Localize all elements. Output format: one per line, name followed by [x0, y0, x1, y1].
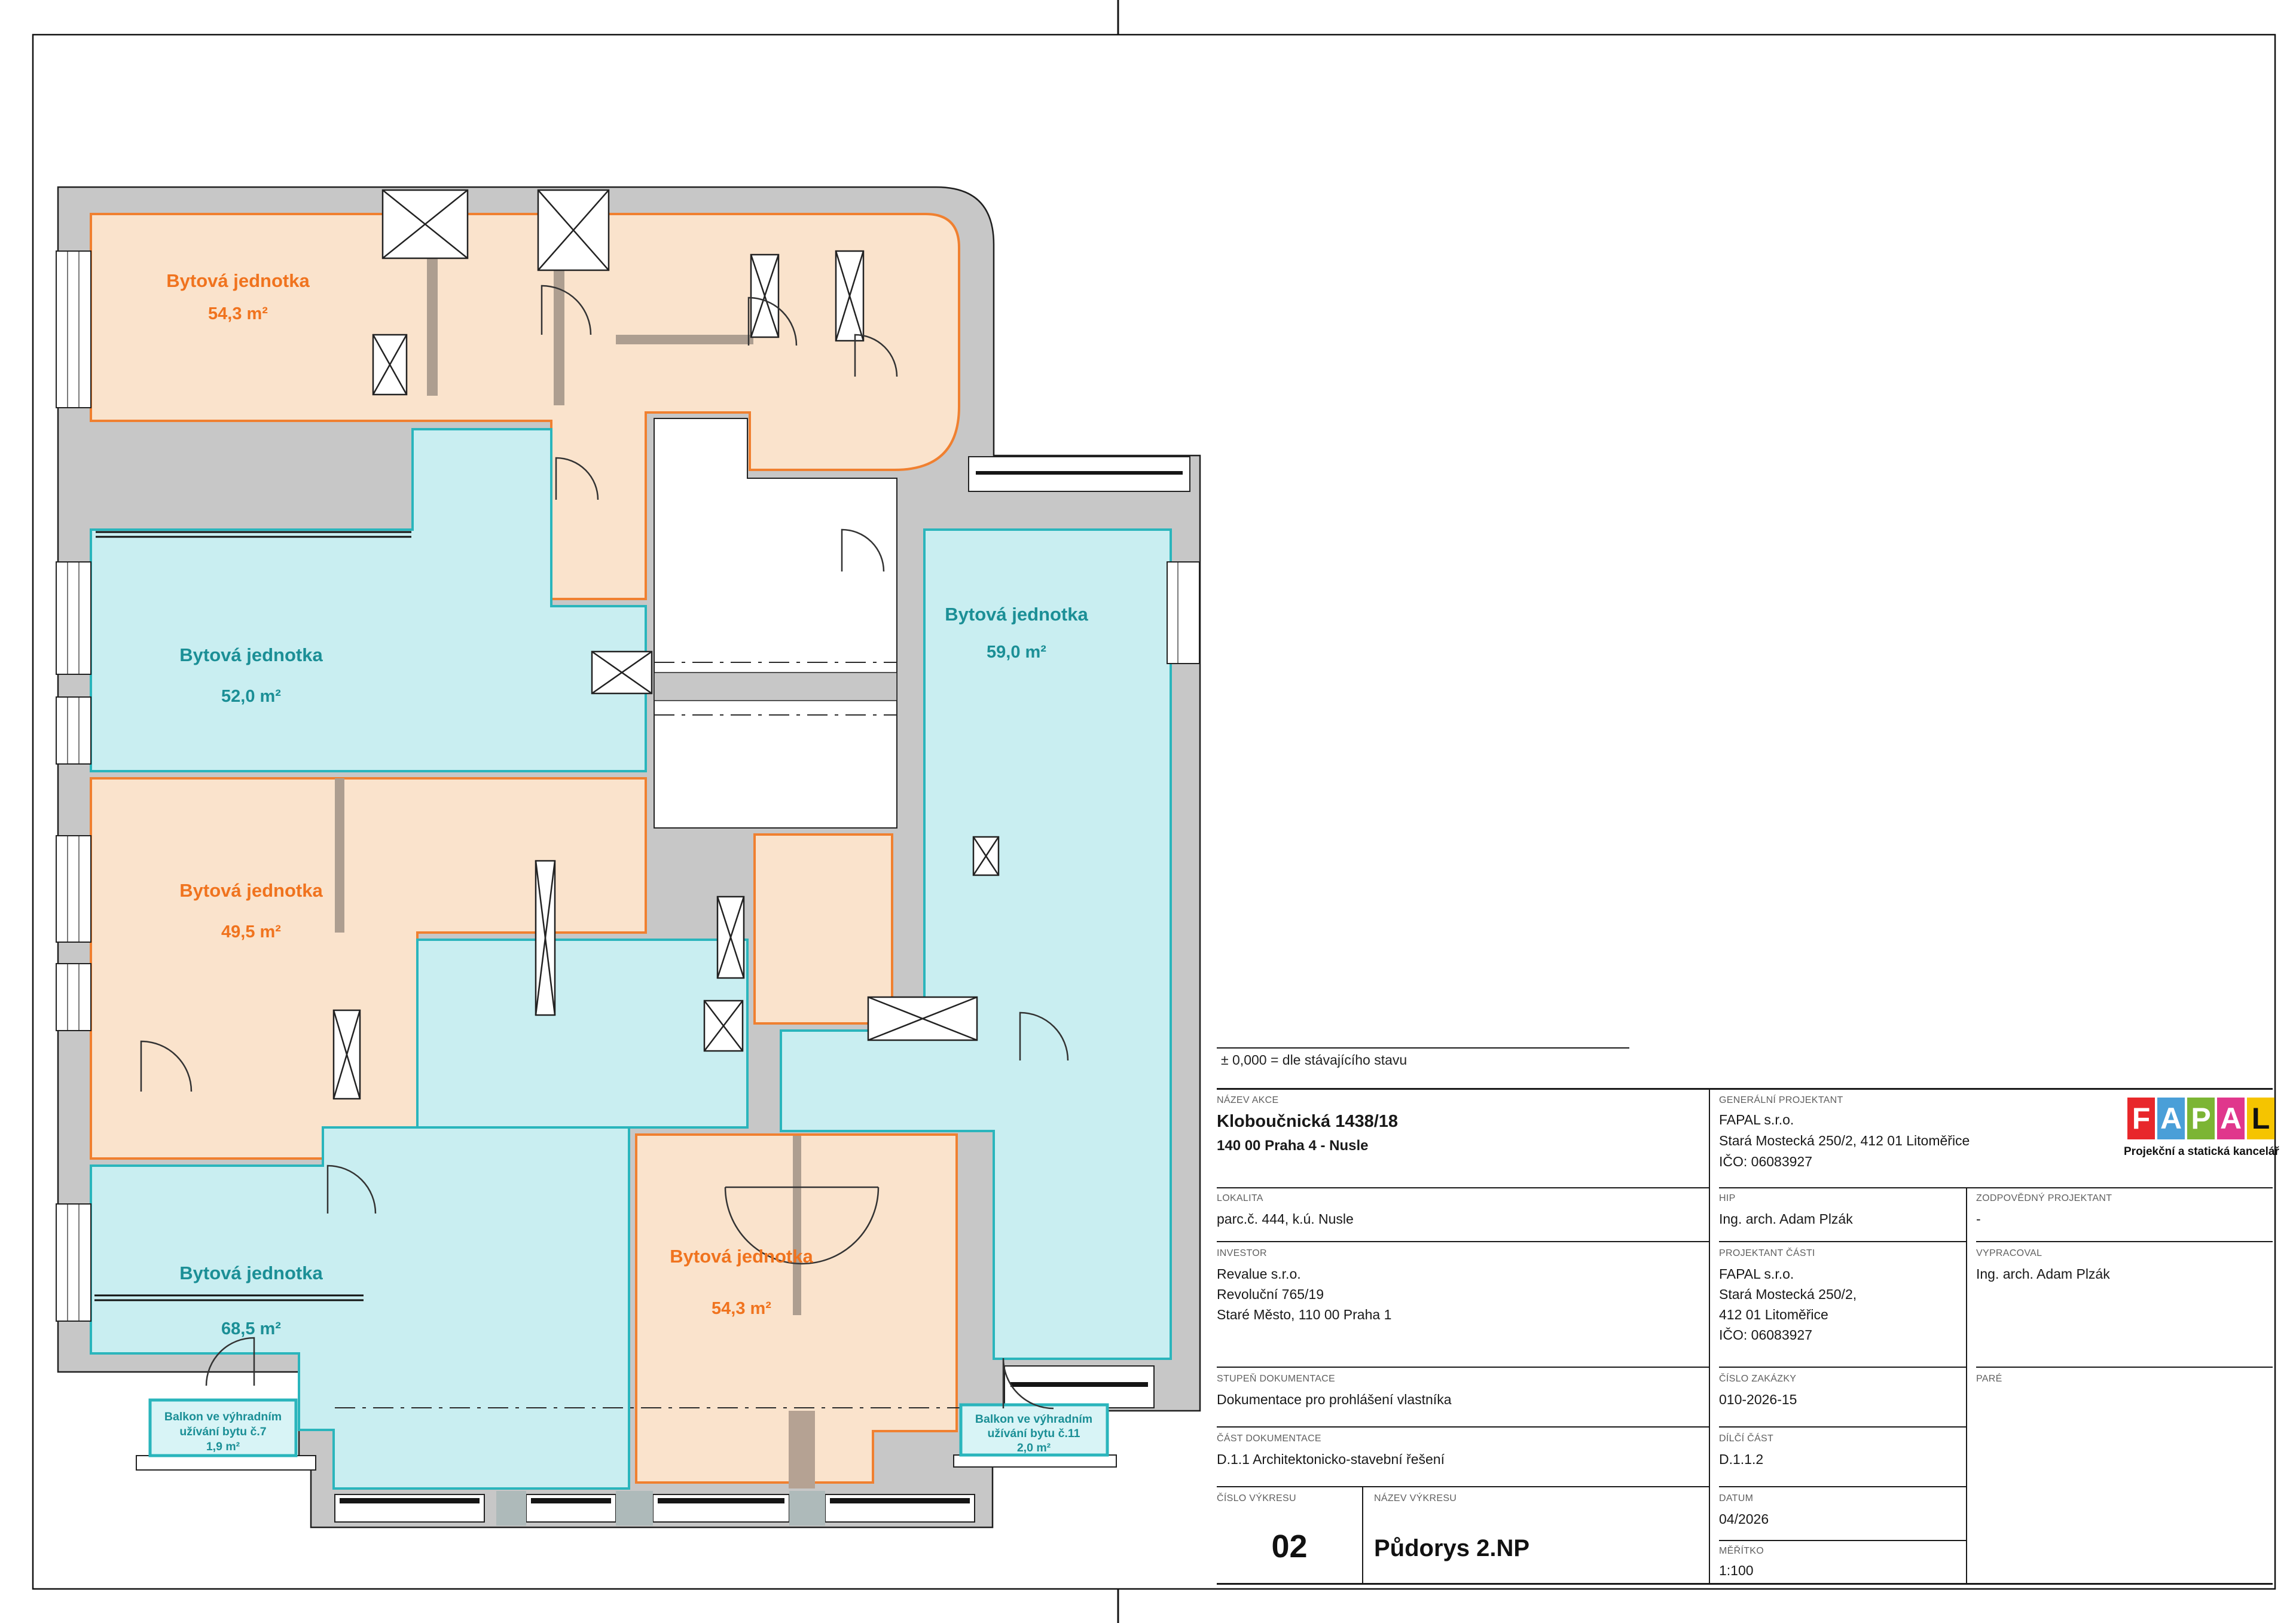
rule [1719, 1486, 1966, 1487]
balcony-11-platform [954, 1455, 1116, 1467]
projektant-casti-line1: FAPAL s.r.o. [1719, 1266, 1794, 1282]
datum-value: 04/2026 [1719, 1511, 1769, 1527]
facade-pier [616, 1491, 653, 1526]
gen-line3: IČO: 06083927 [1719, 1154, 1812, 1170]
loggia-rail [976, 471, 1183, 475]
datum-label: DATUM [1719, 1493, 1753, 1504]
rule [1719, 1367, 1966, 1368]
partition-wall [616, 335, 753, 344]
gen-line1: FAPAL s.r.o. [1719, 1112, 1794, 1128]
unit-54a-label: Bytová jednotka [166, 270, 310, 291]
pare-label: PARÉ [1976, 1374, 2002, 1384]
vypracoval-value: Ing. arch. Adam Plzák [1976, 1266, 2110, 1282]
logo-letter-a2: A [2217, 1098, 2245, 1139]
meritko-label: MĚŘÍTKO [1719, 1546, 1764, 1557]
partition-wall [335, 778, 344, 933]
unit-59-label: Bytová jednotka [945, 604, 1088, 625]
investor-line2: Revoluční 765/19 [1217, 1286, 1324, 1303]
bottom-windows [335, 1491, 975, 1526]
partition-pier [789, 1411, 815, 1488]
rule [1217, 1486, 1709, 1487]
investor-line1: Revalue s.r.o. [1217, 1266, 1301, 1282]
hip-label: HIP [1719, 1193, 1736, 1204]
rule [1976, 1367, 2273, 1368]
window [56, 1204, 91, 1321]
logo-letter-a1: A [2157, 1098, 2185, 1139]
projektant-casti-line3: 412 01 Litoměřice [1719, 1307, 1828, 1323]
balcony-11-line2: užívání bytu č.11 [988, 1427, 1080, 1440]
zodpovedny-label: ZODPOVĚDNÝ PROJEKTANT [1976, 1193, 2112, 1204]
unit-49-area: 49,5 m² [221, 922, 281, 942]
elevation-note: ± 0,000 = dle stávajícího stavu [1221, 1052, 1407, 1068]
investor-line3: Staré Město, 110 00 Praha 1 [1217, 1307, 1391, 1323]
logo-caption: Projekční a statická kancelář [2124, 1145, 2279, 1159]
window [56, 251, 91, 408]
logo-letter-p: P [2187, 1098, 2215, 1139]
balcony-11-line1: Balkon ve výhradním [975, 1413, 1092, 1426]
projektant-casti-label: PROJEKTANT ČÁSTI [1719, 1248, 1815, 1259]
unit-54a-area: 54,3 m² [208, 304, 268, 323]
rule [1217, 1047, 1629, 1049]
hip-value: Ing. arch. Adam Plzák [1719, 1211, 1853, 1227]
cislo-zakazky-value: 010-2026-15 [1719, 1392, 1797, 1408]
stair-landing [654, 673, 897, 701]
rule [1719, 1187, 2273, 1188]
balcony-7-line2: užívání bytu č.7 [179, 1425, 266, 1438]
titleblock-bottom-rule [1217, 1583, 2273, 1585]
dilci-cast-label: DÍLČÍ ČÁST [1719, 1434, 1773, 1444]
unit-68-teal-hall [417, 940, 747, 1127]
unit-68-area: 68,5 m² [221, 1319, 281, 1338]
zodpovedny-value: - [1976, 1211, 1981, 1227]
facade-pier [789, 1491, 825, 1526]
stupen-value: Dokumentace pro prohlášení vlastníka [1217, 1392, 1452, 1408]
courtyard [654, 418, 897, 828]
nazev-akce-line2: 140 00 Praha 4 - Nusle [1217, 1138, 1368, 1154]
unit-54b-label: Bytová jednotka [670, 1246, 813, 1267]
cislo-zakazky-label: ČÍSLO ZAKÁZKY [1719, 1374, 1796, 1384]
nazev-vykresu-label: NÁZEV VÝKRESU [1374, 1493, 1457, 1504]
logo-letter-f: F [2127, 1098, 2155, 1139]
dilci-cast-value: D.1.1.2 [1719, 1451, 1763, 1468]
lokalita-label: LOKALITA [1217, 1193, 1263, 1204]
window-rail [830, 1498, 970, 1503]
divider [1709, 1089, 1710, 1583]
rule [1217, 1187, 1709, 1188]
lokalita-value: parc.č. 444, k.ú. Nusle [1217, 1211, 1354, 1227]
divider [1966, 1187, 1967, 1583]
stupen-label: STUPEŇ DOKUMENTACE [1217, 1374, 1335, 1384]
nazev-akce-label: NÁZEV AKCE [1217, 1095, 1278, 1106]
unit-59-area: 59,0 m² [987, 643, 1046, 662]
rule [1217, 1241, 1709, 1242]
projektant-casti-line4: IČO: 06083927 [1719, 1327, 1812, 1343]
logo-letter-l: L [2247, 1098, 2274, 1139]
window-rail [658, 1498, 784, 1503]
balcony-11-line3: 2,0 m² [1017, 1441, 1051, 1454]
meritko-value: 1:100 [1719, 1563, 1754, 1579]
investor-label: INVESTOR [1217, 1248, 1267, 1259]
cast-value: D.1.1 Architektonicko-stavební řešení [1217, 1451, 1445, 1468]
unit-54b-orange-bath [755, 835, 892, 1023]
partition-wall [793, 1136, 801, 1315]
unit-52-label: Bytová jednotka [179, 644, 323, 665]
balcony-7-platform [136, 1456, 316, 1470]
balcony-7-line3: 1,9 m² [206, 1440, 240, 1453]
titleblock-top-rule [1217, 1088, 2273, 1090]
window-rail [531, 1498, 611, 1503]
rule [1719, 1426, 1966, 1428]
unit-52-area: 52,0 m² [221, 687, 281, 706]
rule [1217, 1367, 1709, 1368]
unit-68-label: Bytová jednotka [179, 1263, 323, 1283]
window-rail [1010, 1382, 1148, 1387]
sheet: { "sheet": { "elevation_note": "± 0,000 … [0, 0, 2296, 1623]
nazev-akce-line1: Kloboučnická 1438/18 [1217, 1112, 1398, 1132]
divider [1362, 1486, 1363, 1583]
vypracoval-label: VYPRACOVAL [1976, 1248, 2042, 1259]
window [56, 562, 91, 674]
facade-pier [496, 1491, 526, 1526]
window-rail [340, 1498, 480, 1503]
cast-label: ČÁST DOKUMENTACE [1217, 1434, 1321, 1444]
gen-projektant-label: GENERÁLNÍ PROJEKTANT [1719, 1095, 1843, 1106]
unit-54b-area: 54,3 m² [712, 1299, 771, 1318]
rule [1719, 1241, 1966, 1242]
window [56, 697, 91, 764]
gen-line2: Stará Mostecká 250/2, 412 01 Litoměřice [1719, 1133, 1970, 1149]
balcony-7-line1: Balkon ve výhradním [164, 1410, 282, 1423]
rule [1976, 1241, 2273, 1242]
cislo-vykresu-label: ČÍSLO VÝKRESU [1217, 1493, 1296, 1504]
rule [1217, 1426, 1709, 1428]
fapal-logo: F A P A L [2127, 1098, 2274, 1139]
cislo-vykresu-value: 02 [1217, 1528, 1362, 1565]
nazev-vykresu-value: Půdorys 2.NP [1374, 1535, 1529, 1562]
unit-49-label: Bytová jednotka [179, 880, 323, 901]
window [56, 964, 91, 1031]
projektant-casti-line2: Stará Mostecká 250/2, [1719, 1286, 1857, 1303]
window [56, 836, 91, 942]
window [1167, 562, 1199, 664]
rule [1719, 1540, 1966, 1541]
floor-plan-drawing: Bytová jednotka 54,3 m² Bytová jednotka … [0, 0, 2296, 1623]
